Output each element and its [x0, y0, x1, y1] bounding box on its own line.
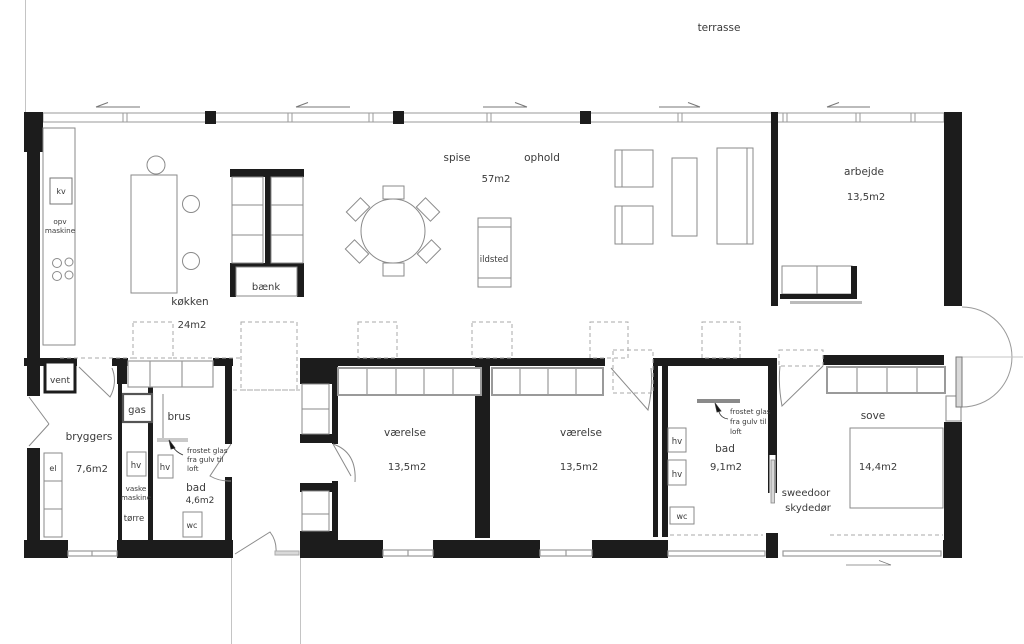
shelf-unit [230, 169, 304, 297]
floor-plan-canvas: terrasse køkken 24m2 spise ophold 57m2 a… [0, 0, 1024, 644]
corridor-door-opening-dashed [779, 350, 823, 366]
bath2-glass-screen [697, 399, 740, 403]
pocket-sliding-door [770, 455, 776, 503]
label-frost-right-1: frostet glas [730, 407, 771, 416]
label-vent: vent [50, 376, 71, 386]
label-kokken: køkken [171, 296, 208, 308]
facade-glass-band [43, 113, 944, 122]
label-vaske-2: maskine [121, 493, 152, 502]
label-bad-master-area: 9,1m2 [710, 462, 742, 473]
east-entry-door-leaf [956, 357, 962, 407]
sliding-door-arrows [96, 103, 870, 108]
label-arbejde-area: 13,5m2 [847, 192, 885, 203]
label-varelse2-area: 13,5m2 [560, 462, 598, 473]
slide-arrow-1 [96, 103, 140, 108]
wall-bath2-west [662, 366, 668, 537]
wall-bedroomblock-north-2 [653, 358, 777, 366]
coffee-table [672, 158, 697, 236]
wall-south-2 [117, 540, 233, 558]
label-varelse1-area: 13,5m2 [388, 462, 426, 473]
armchair-1 [615, 150, 653, 187]
wall-south-4 [433, 540, 540, 558]
skylight-3 [472, 322, 512, 358]
skylight-1 [133, 322, 173, 358]
label-bank: bænk [252, 282, 281, 293]
hall-closets [302, 384, 329, 531]
closet2-bottom-slab [300, 531, 335, 540]
label-bryggers-area: 7,6m2 [76, 464, 108, 475]
bedroom1-wardrobe [338, 368, 481, 395]
slide-arrow-3 [483, 103, 527, 108]
armchair-2 [615, 206, 653, 244]
label-hv-2: hv [160, 463, 170, 473]
chair-bottom [383, 263, 404, 276]
skylight-5 [702, 322, 740, 358]
bath2-south-glass [668, 551, 765, 556]
bedroom1-door [333, 444, 355, 482]
label-opv-2: maskine [45, 226, 76, 235]
label-varelse1: værelse [384, 427, 426, 439]
label-bad-master: bad [715, 443, 735, 455]
label-sweedoor-1: sweedoor [782, 488, 831, 499]
skylight-4 [590, 322, 628, 358]
label-wc-2: wc [677, 512, 688, 521]
label-sove-area: 14,4m2 [859, 462, 897, 473]
label-sove: sove [861, 410, 886, 422]
sove-south-glass [783, 551, 941, 556]
closet1-top-slab [300, 366, 332, 384]
closet1-bottom-slab [300, 434, 332, 443]
bedroom2-door-opening-dashed [613, 350, 653, 393]
wall-south-5 [592, 540, 668, 558]
kitchen-island [131, 175, 177, 293]
corridor-door [779, 366, 823, 406]
frost-arrowhead-right [715, 403, 721, 412]
label-frost-right-3: loft [730, 427, 742, 436]
label-opv-1: opv [53, 217, 67, 226]
kitchen-counter [43, 128, 75, 345]
skylight-2 [358, 322, 397, 358]
sove-wardrobe [827, 367, 945, 393]
label-hv-4: hv [672, 470, 682, 480]
label-bad-small-area: 4,6m2 [186, 496, 215, 506]
wall-south-3 [300, 540, 383, 558]
wall-west-lower [27, 448, 40, 540]
bath1-north-window [128, 361, 213, 387]
skylight-hall [241, 322, 297, 390]
stool-2 [183, 196, 200, 213]
office-sofa [780, 266, 862, 304]
label-kv: kv [56, 187, 66, 196]
frost-arrow-right [719, 412, 728, 419]
wall-south-1 [24, 540, 68, 558]
kitchen-utility-door [79, 367, 114, 397]
wall-sove-north [823, 355, 944, 365]
chair-top [383, 186, 404, 199]
slide-arrow-4 [659, 103, 700, 108]
label-wc-1: wc [187, 521, 198, 530]
entrance-door-sill [275, 551, 299, 555]
label-frost-left-2: fra gulv til [187, 455, 224, 464]
label-bad-small: bad [186, 482, 206, 494]
wall-east-lower [944, 422, 962, 558]
dining-table [361, 199, 425, 263]
dining-set [345, 186, 440, 276]
label-terrasse: terrasse [698, 22, 741, 34]
north-facade [43, 103, 944, 125]
wall-south-stub [766, 533, 778, 558]
label-torre: tørre [124, 514, 144, 524]
entrance-door [235, 532, 276, 554]
label-frost-left-1: frostet glas [187, 446, 228, 455]
label-kokken-area: 24m2 [178, 320, 207, 331]
label-spise: spise [444, 152, 471, 164]
south-slide-arrow [846, 561, 891, 566]
label-el: el [49, 464, 56, 473]
west-double-door [29, 397, 49, 446]
label-arbejde: arbejde [844, 166, 884, 178]
floor-plan-svg: terrasse køkken 24m2 spise ophold 57m2 a… [0, 0, 1024, 644]
label-frost-left-3: loft [187, 464, 199, 473]
wall-utility-post [117, 358, 127, 384]
label-hv-3: hv [672, 437, 682, 447]
label-hv-1: hv [131, 461, 141, 471]
label-bryggers: bryggers [66, 431, 113, 443]
slide-arrow-2 [296, 103, 350, 108]
wall-bed2-east [653, 366, 658, 537]
label-living-area: 57m2 [482, 174, 511, 185]
stool-3 [183, 253, 200, 270]
label-sweedoor-2: skydedør [785, 503, 832, 514]
stool-1 [147, 156, 165, 174]
label-vaske-1: vaske [126, 484, 147, 493]
bedroom2-wardrobe [492, 368, 603, 395]
kitchen-fixtures [43, 128, 200, 345]
label-frost-right-2: fra gulv til [730, 417, 767, 426]
wall-nw-corner [24, 112, 43, 152]
wall-hall-west [225, 358, 232, 444]
living-furniture [615, 148, 753, 244]
bedroom2-door [611, 368, 652, 410]
wall-east-upper [944, 112, 962, 306]
wall-office-west [771, 112, 778, 306]
slide-arrow-5 [827, 103, 870, 108]
label-varelse2: værelse [560, 427, 602, 439]
fireplace [478, 218, 511, 287]
sofa [717, 148, 753, 244]
label-gas: gas [128, 405, 146, 416]
wall-strip-left [118, 384, 122, 540]
label-ophold: ophold [524, 152, 560, 164]
wall-bedroomblock-north-1 [300, 358, 605, 366]
shower-glass [157, 438, 188, 442]
label-brus: brus [167, 411, 190, 423]
wall-hall-west-2 [225, 477, 232, 540]
label-ildsted: ildsted [480, 255, 509, 265]
